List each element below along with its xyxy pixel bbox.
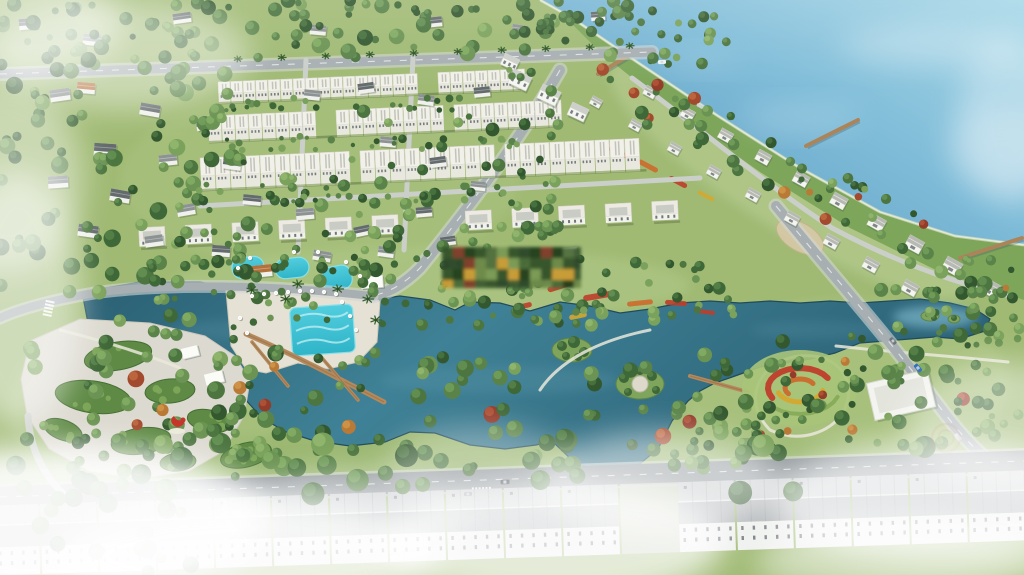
tree-highlight — [266, 191, 271, 196]
tree — [498, 136, 505, 143]
facade-window — [411, 168, 413, 171]
tree-highlight — [236, 395, 242, 401]
villa-window — [655, 216, 657, 219]
townhouse-roof — [580, 140, 595, 159]
facade-window — [359, 125, 361, 128]
townhouse-facade — [610, 157, 625, 171]
tree — [329, 267, 336, 274]
tree-highlight — [592, 300, 597, 305]
tree-highlight — [343, 421, 351, 429]
townhouse-roof — [610, 139, 625, 158]
tree-highlight — [697, 133, 704, 140]
tree-highlight — [187, 177, 195, 185]
tree-highlight — [1015, 324, 1021, 330]
tree-highlight — [227, 291, 232, 296]
townhouse-roof — [248, 114, 261, 129]
tree-highlight — [728, 305, 733, 310]
tree-highlight — [112, 434, 121, 443]
tree-highlight — [355, 356, 361, 362]
facade-window — [248, 176, 250, 179]
villa-window — [475, 225, 477, 228]
tree — [536, 156, 544, 164]
umbrella-tip — [263, 293, 264, 294]
villa-window — [487, 224, 489, 227]
tree-highlight — [553, 221, 560, 228]
tree-highlight — [875, 284, 883, 292]
facade-window — [298, 128, 300, 131]
facade-window — [265, 130, 267, 133]
tree-highlight — [685, 119, 691, 125]
tree-highlight — [438, 352, 445, 359]
tree-highlight — [449, 297, 455, 303]
island-tree-highlight — [653, 386, 657, 390]
tree — [790, 371, 797, 378]
villa-window — [615, 218, 617, 221]
tree — [1008, 267, 1014, 273]
facade-window — [302, 92, 304, 95]
townhouse-roof — [335, 151, 350, 170]
facade-window — [508, 164, 510, 167]
tree — [799, 176, 805, 182]
tree-highlight — [175, 237, 181, 243]
facade-window — [571, 161, 573, 164]
tree-highlight — [640, 361, 647, 368]
tree — [806, 189, 813, 196]
tree-highlight — [152, 131, 158, 137]
tree-highlight — [910, 347, 919, 356]
townhouse-facade — [431, 120, 444, 131]
tree-highlight — [362, 358, 367, 363]
tree-highlight — [136, 219, 143, 226]
tree-highlight — [233, 233, 238, 238]
facade-window — [315, 173, 317, 176]
mosaic-cell — [475, 280, 486, 288]
villa-window — [568, 220, 570, 223]
facade-window — [326, 172, 328, 175]
facade-window — [345, 171, 347, 174]
tree-highlight — [844, 174, 850, 180]
tree-highlight — [933, 287, 938, 292]
tree-highlight — [754, 435, 766, 447]
tree — [385, 193, 391, 199]
tree-highlight — [689, 93, 696, 100]
tree-highlight — [157, 120, 162, 125]
tree-highlight — [176, 370, 184, 378]
tree-highlight — [711, 370, 718, 377]
tree — [694, 306, 701, 313]
tree-highlight — [508, 381, 516, 389]
tree-highlight — [475, 358, 482, 365]
tree-highlight — [848, 333, 852, 337]
tree — [346, 193, 353, 200]
facade-window — [776, 535, 779, 539]
tree-highlight — [296, 198, 301, 203]
tree — [231, 324, 237, 330]
facade-window — [399, 124, 401, 127]
tree-highlight — [777, 335, 785, 343]
tree-highlight — [465, 291, 471, 297]
tree-highlight — [933, 337, 939, 343]
mosaic-cell — [486, 258, 497, 269]
facade-window — [372, 125, 374, 128]
tree-highlight — [898, 362, 903, 367]
tree — [260, 183, 265, 188]
tree-highlight — [869, 345, 878, 354]
tree-highlight — [923, 248, 930, 255]
suburban-house — [416, 206, 434, 219]
tree-highlight — [510, 363, 517, 370]
tree-highlight — [838, 382, 844, 388]
townhouse-facade — [263, 127, 276, 138]
tree-highlight — [92, 429, 98, 435]
villa-window — [254, 236, 256, 239]
facade-window — [586, 160, 588, 163]
tree — [250, 318, 257, 325]
mosaic-cell — [563, 269, 574, 280]
facade-window — [568, 161, 570, 164]
tree — [291, 199, 295, 203]
tree-highlight — [639, 405, 645, 411]
facade-window — [440, 122, 442, 125]
tree-highlight — [129, 185, 134, 190]
tree — [973, 342, 979, 348]
mosaic-cell — [530, 258, 541, 269]
facade-window — [263, 175, 265, 178]
tree — [278, 145, 285, 152]
tree-highlight — [289, 459, 299, 469]
facade-window — [396, 124, 398, 127]
tree-highlight — [835, 411, 843, 419]
tree-highlight — [420, 192, 425, 197]
umbrella-tip — [311, 290, 312, 291]
tree-highlight — [270, 362, 275, 367]
tree — [278, 263, 286, 271]
tree — [172, 296, 178, 302]
mosaic-cell — [519, 280, 530, 288]
townhouse-roof — [405, 148, 420, 167]
island-tree-highlight — [951, 315, 954, 318]
tree-highlight — [598, 288, 603, 293]
villa-roof-panel — [469, 214, 487, 223]
tree — [460, 183, 468, 191]
facade-window — [436, 122, 438, 125]
townhouse-roof — [336, 110, 349, 125]
facade-window — [271, 93, 273, 96]
tree-highlight — [359, 194, 364, 199]
tree — [580, 306, 588, 314]
palm-crown — [297, 283, 299, 285]
tree — [640, 262, 648, 270]
tree — [414, 199, 419, 204]
tree — [328, 136, 335, 143]
villa-window — [515, 223, 517, 226]
mosaic-cell — [508, 269, 519, 280]
tree-highlight — [577, 300, 584, 307]
tree-highlight — [585, 367, 593, 375]
tree-highlight — [798, 164, 803, 169]
tree-highlight — [129, 371, 138, 380]
facade-window — [333, 90, 335, 93]
townhouse-roof — [550, 142, 565, 161]
tree-highlight — [232, 429, 237, 434]
townhouse-facade — [303, 126, 316, 137]
tree-highlight — [531, 201, 538, 208]
tree — [253, 100, 260, 107]
island-tree-highlight — [563, 352, 567, 356]
tree-highlight — [136, 440, 144, 448]
villa-window — [207, 238, 209, 241]
tree-highlight — [155, 436, 166, 447]
facade-window — [753, 536, 756, 540]
suburban-house — [296, 208, 317, 222]
townhouse-facade — [404, 121, 417, 132]
facade-window — [616, 159, 618, 162]
tree-highlight — [393, 233, 398, 238]
tree-highlight — [157, 405, 164, 412]
tree-highlight — [272, 263, 277, 268]
tree — [425, 142, 433, 150]
tree-highlight — [95, 235, 99, 239]
tree-highlight — [275, 345, 280, 350]
tree-highlight — [986, 307, 992, 313]
mosaic-cell — [574, 280, 581, 288]
tree-highlight — [573, 320, 578, 325]
facade-window — [544, 162, 546, 165]
tree — [910, 210, 917, 217]
facade-window — [236, 95, 238, 98]
tree-highlight — [970, 303, 976, 309]
tree-highlight — [232, 356, 238, 362]
tree — [349, 156, 356, 163]
facade-window — [471, 166, 473, 169]
tree — [478, 136, 484, 142]
tree-highlight — [67, 115, 74, 122]
tree-highlight — [648, 307, 655, 314]
tree-highlight — [796, 357, 801, 362]
tree — [322, 230, 330, 238]
tree — [313, 104, 320, 111]
facade-window — [286, 92, 288, 95]
mosaic-cell — [464, 280, 475, 288]
facade-window — [363, 170, 365, 173]
tree-highlight — [252, 272, 258, 278]
umbrella-tip — [251, 295, 252, 296]
tree-highlight — [679, 99, 685, 105]
tree-highlight — [842, 218, 847, 223]
tree-highlight — [191, 255, 197, 261]
mosaic-cell — [475, 247, 486, 258]
tree — [984, 337, 992, 345]
mosaic-cell — [453, 280, 464, 288]
facade-window — [574, 161, 576, 164]
tree — [499, 189, 506, 196]
facade-window — [741, 536, 744, 540]
tree-highlight — [893, 415, 901, 423]
tree-highlight — [84, 381, 89, 386]
townhouse-facade — [468, 118, 481, 129]
tree — [379, 320, 386, 327]
townhouse-roof — [480, 145, 495, 164]
tree-highlight — [696, 428, 701, 433]
tree-highlight — [525, 289, 530, 294]
townhouse-roof — [290, 153, 305, 172]
tree-highlight — [454, 118, 460, 124]
tree-highlight — [190, 116, 195, 121]
facade-window — [366, 170, 368, 173]
tree-highlight — [1010, 314, 1015, 319]
facade-window — [224, 132, 226, 135]
tree-highlight — [965, 276, 972, 283]
tree — [211, 289, 217, 295]
villa-roof-panel — [562, 209, 580, 218]
tree-highlight — [368, 287, 374, 293]
tree-highlight — [989, 295, 995, 301]
facade-window — [241, 131, 243, 134]
facade-window — [231, 131, 233, 134]
villa-window — [621, 217, 623, 220]
villa-window — [142, 242, 144, 245]
tree-highlight — [384, 241, 391, 248]
townhouse-roof — [465, 145, 480, 164]
tree-highlight — [361, 246, 366, 251]
villa-roof-panel — [283, 223, 301, 232]
tree-highlight — [418, 165, 424, 171]
tree — [783, 412, 789, 418]
top-atmosphere-haze — [0, 0, 1024, 90]
tree-highlight — [202, 129, 207, 134]
tree-highlight — [803, 395, 810, 402]
villa-window — [667, 215, 669, 218]
townhouse-facade — [363, 123, 376, 134]
tree-highlight — [250, 410, 255, 415]
facade-window — [420, 123, 422, 126]
villa-window — [387, 229, 389, 232]
tree-highlight — [482, 162, 487, 167]
tree-highlight — [469, 238, 474, 243]
tree — [265, 299, 272, 306]
umbrella-tip — [359, 275, 360, 276]
tree-highlight — [744, 369, 749, 374]
tree-highlight — [929, 292, 935, 298]
facade-window — [305, 128, 307, 131]
facade-window — [537, 117, 539, 120]
aerial-masterplan-render — [0, 0, 1024, 575]
tree — [514, 141, 520, 147]
villa-window — [195, 239, 197, 242]
facade-window — [295, 128, 297, 131]
suburban-house — [429, 156, 448, 170]
tree-highlight — [673, 293, 679, 299]
tree-highlight — [207, 424, 214, 431]
facade-window — [251, 175, 253, 178]
tree — [413, 255, 420, 262]
tree — [268, 147, 273, 152]
tree — [290, 95, 297, 102]
villa-roof-panel — [516, 212, 534, 221]
tree-highlight — [349, 266, 355, 272]
tree — [236, 139, 243, 146]
tree-highlight — [940, 365, 949, 374]
facade-window — [339, 126, 341, 129]
tree-highlight — [85, 254, 93, 262]
facade-window — [370, 170, 372, 173]
tree-highlight — [547, 132, 552, 137]
tree — [324, 317, 331, 324]
facade-window — [514, 164, 516, 167]
tree — [388, 162, 396, 170]
tree-highlight — [242, 217, 250, 225]
tree-highlight — [259, 412, 268, 421]
townhouse-facade — [246, 173, 261, 187]
tree-highlight — [522, 221, 530, 229]
tree-highlight — [185, 161, 193, 169]
facade-window — [399, 169, 401, 172]
lake-island — [948, 315, 960, 323]
villa-window — [288, 234, 290, 237]
tree-highlight — [631, 257, 637, 263]
tree — [338, 184, 342, 188]
facade-window — [240, 176, 242, 179]
tree — [672, 96, 679, 103]
tree-highlight — [399, 135, 404, 140]
tree-highlight — [115, 198, 120, 203]
mosaic-cell — [552, 258, 563, 269]
tree-highlight — [714, 407, 722, 415]
tree-highlight — [741, 419, 747, 425]
tree-highlight — [40, 421, 45, 426]
tree-highlight — [184, 433, 192, 441]
tree-highlight — [666, 260, 671, 265]
tree-highlight — [920, 220, 925, 225]
tree-highlight — [699, 348, 707, 356]
villa-window — [574, 220, 576, 223]
townhouse-roof — [565, 141, 580, 160]
facade-window — [408, 168, 410, 171]
tree-highlight — [199, 196, 204, 201]
palm-crown — [251, 289, 253, 291]
tree-highlight — [811, 399, 819, 407]
tree-highlight — [183, 189, 189, 195]
tree-highlight — [819, 391, 824, 396]
tree — [446, 95, 454, 103]
facade-window — [414, 168, 416, 171]
villa-window — [673, 215, 675, 218]
tree-highlight — [695, 261, 701, 267]
tree-highlight — [142, 352, 148, 358]
facade-window — [381, 170, 383, 173]
tree-highlight — [289, 175, 294, 180]
mosaic-cell — [442, 247, 453, 258]
facade-window — [741, 526, 744, 530]
tree — [217, 188, 224, 195]
facade-window — [473, 120, 475, 123]
tree-highlight — [778, 359, 783, 364]
tree-highlight — [725, 296, 729, 300]
tree — [855, 193, 863, 201]
umbrella-tip — [246, 332, 247, 333]
mosaic-cell — [486, 280, 497, 288]
tree-highlight — [208, 382, 218, 392]
tree-highlight — [225, 150, 235, 160]
tree-highlight — [550, 177, 556, 183]
tree — [884, 413, 892, 421]
tree — [370, 144, 375, 149]
tree-highlight — [739, 439, 745, 445]
mosaic-cell — [486, 269, 497, 280]
townhouse-facade — [466, 163, 481, 177]
villa-window — [335, 232, 337, 235]
tree — [225, 241, 232, 248]
